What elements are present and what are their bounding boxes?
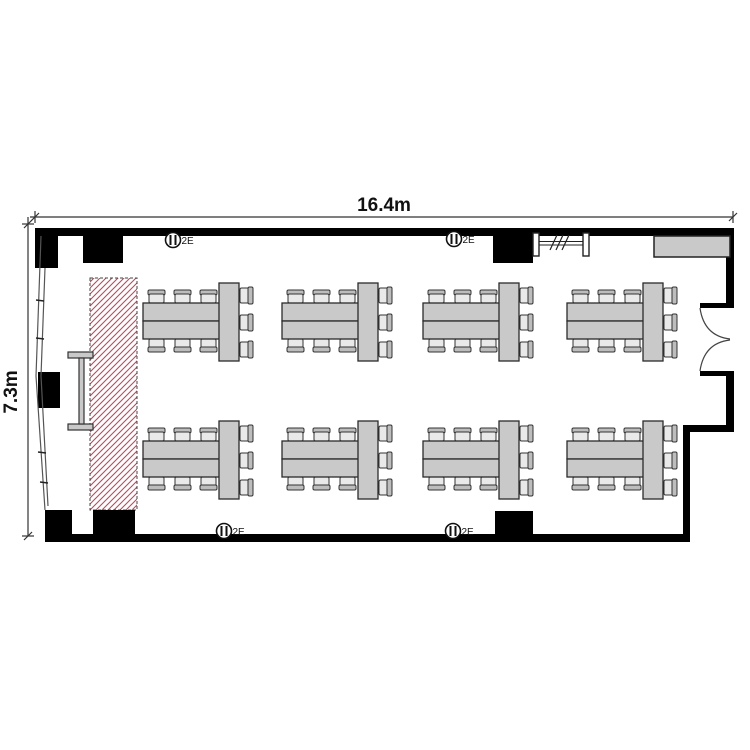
chair-backrest <box>624 347 641 352</box>
chair-icon <box>598 477 615 490</box>
long-table <box>143 459 221 477</box>
chair-icon <box>480 477 497 490</box>
chair-icon <box>240 287 253 304</box>
chair-icon <box>379 287 392 304</box>
chair-icon <box>379 479 392 496</box>
long-table <box>567 321 645 339</box>
chair-backrest <box>672 314 677 331</box>
pillar <box>35 228 58 268</box>
chair-icon <box>313 477 330 490</box>
chair-backrest <box>287 485 304 490</box>
outlet-circle <box>446 524 461 539</box>
chair-backrest <box>174 485 191 490</box>
chair-icon <box>339 339 356 352</box>
chair-backrest <box>672 479 677 496</box>
chair-icon <box>240 341 253 358</box>
window-mullion-tick <box>40 482 48 483</box>
chair-icon <box>520 479 533 496</box>
chair-icon <box>339 290 356 303</box>
long-table <box>567 459 645 477</box>
chair-seat <box>481 294 496 303</box>
screen-hatch-area <box>90 278 137 510</box>
chair-icon <box>240 479 253 496</box>
chair-backrest <box>428 347 445 352</box>
chair-icon <box>572 339 589 352</box>
table-group-6 <box>282 421 392 499</box>
chair-icon <box>428 428 445 441</box>
end-table <box>358 283 378 361</box>
chair-seat <box>288 294 303 303</box>
chair-icon <box>598 428 615 441</box>
chair-backrest <box>248 287 253 304</box>
chair-icon <box>664 314 677 331</box>
end-table <box>358 421 378 499</box>
whiteboard-stand-bar <box>79 358 84 424</box>
chair-icon <box>240 452 253 469</box>
chair-backrest <box>248 341 253 358</box>
window-mullion-tick <box>38 452 46 453</box>
chair-icon <box>174 477 191 490</box>
outlet-circle <box>166 233 181 248</box>
coat-rack-hanger-slash <box>562 235 569 250</box>
chair-backrest <box>200 347 217 352</box>
chair-backrest <box>480 485 497 490</box>
chair-backrest <box>528 479 533 496</box>
chair-backrest <box>387 287 392 304</box>
whiteboard-stand-cap <box>68 352 93 358</box>
chair-icon <box>664 479 677 496</box>
long-table <box>423 321 501 339</box>
chair-backrest <box>528 425 533 442</box>
door-swing-arc <box>700 340 730 371</box>
whiteboard-stand <box>68 352 93 430</box>
chair-backrest <box>454 485 471 490</box>
long-table <box>423 441 501 459</box>
chair-icon <box>174 428 191 441</box>
chair-seat <box>599 294 614 303</box>
coat-rack-post <box>583 233 589 256</box>
chair-backrest <box>313 485 330 490</box>
counter-shelf <box>654 236 730 257</box>
chair-backrest <box>200 485 217 490</box>
chair-icon <box>379 452 392 469</box>
whiteboard-stand-cap <box>68 424 93 430</box>
chair-icon <box>428 477 445 490</box>
chair-icon <box>339 477 356 490</box>
table-group-5 <box>143 421 253 499</box>
chair-icon <box>287 290 304 303</box>
chair-backrest <box>672 341 677 358</box>
chair-icon <box>664 452 677 469</box>
chair-seat <box>340 432 355 441</box>
table-group-2 <box>282 283 392 361</box>
chair-icon <box>287 339 304 352</box>
long-table <box>282 441 360 459</box>
coat-rack-hanger-slash <box>550 235 557 250</box>
chair-backrest <box>174 347 191 352</box>
outlet-label: 2E <box>233 527 246 538</box>
chair-icon <box>624 290 641 303</box>
chair-seat <box>288 432 303 441</box>
wall-right-lower <box>683 425 690 542</box>
chair-backrest <box>624 485 641 490</box>
chair-backrest <box>248 452 253 469</box>
chair-icon <box>428 339 445 352</box>
chair-icon <box>480 339 497 352</box>
chair-icon <box>148 339 165 352</box>
chair-icon <box>240 425 253 442</box>
chair-icon <box>287 428 304 441</box>
chair-icon <box>200 428 217 441</box>
table-group-1 <box>143 283 253 361</box>
pillar <box>495 511 533 541</box>
screen-area-layer <box>90 278 137 510</box>
chair-seat <box>340 294 355 303</box>
chair-seat <box>455 294 470 303</box>
chair-seat <box>314 432 329 441</box>
coat-rack-post <box>533 233 539 256</box>
dimension-width-label: 16.4m <box>357 195 411 216</box>
chair-icon <box>664 287 677 304</box>
chair-seat <box>175 294 190 303</box>
chair-icon <box>520 314 533 331</box>
long-table <box>282 303 360 321</box>
outlet-label: 2E <box>182 236 195 247</box>
door-jamb-top <box>700 303 734 308</box>
chair-backrest <box>248 314 253 331</box>
chair-seat <box>201 432 216 441</box>
chair-backrest <box>387 425 392 442</box>
chair-icon <box>148 290 165 303</box>
chair-seat <box>455 432 470 441</box>
chair-backrest <box>454 347 471 352</box>
table-group-4 <box>567 283 677 361</box>
end-table <box>643 421 663 499</box>
chair-icon <box>174 290 191 303</box>
long-table <box>282 321 360 339</box>
chair-icon <box>454 477 471 490</box>
chair-backrest <box>428 485 445 490</box>
chair-icon <box>240 314 253 331</box>
end-table <box>499 283 519 361</box>
chair-backrest <box>528 287 533 304</box>
chair-icon <box>200 339 217 352</box>
chair-icon <box>572 477 589 490</box>
long-table <box>143 303 221 321</box>
chair-backrest <box>339 347 356 352</box>
fixtures-layer: 2E2E2E2E <box>68 232 730 539</box>
chair-seat <box>599 432 614 441</box>
chair-icon <box>624 477 641 490</box>
chair-seat <box>149 432 164 441</box>
chair-icon <box>454 290 471 303</box>
pillar <box>493 228 533 263</box>
chair-icon <box>313 290 330 303</box>
chair-seat <box>625 294 640 303</box>
floor-plan-page: 2E2E2E2E 16.4m 7.3m <box>0 0 750 750</box>
table-group-8 <box>567 421 677 499</box>
chair-icon <box>339 428 356 441</box>
chair-icon <box>313 428 330 441</box>
outlet-circle <box>217 524 232 539</box>
chair-backrest <box>672 452 677 469</box>
chair-icon <box>480 428 497 441</box>
window-mullion-tick <box>36 300 44 301</box>
chair-backrest <box>528 314 533 331</box>
door-swing-arc <box>700 308 730 339</box>
chair-icon <box>624 339 641 352</box>
chair-seat <box>429 294 444 303</box>
pillar <box>93 510 135 541</box>
chair-icon <box>379 314 392 331</box>
coat-rack-hanger-slash <box>556 235 563 250</box>
chair-backrest <box>148 485 165 490</box>
chair-backrest <box>387 479 392 496</box>
chair-icon <box>598 290 615 303</box>
chair-icon <box>454 428 471 441</box>
chair-icon <box>313 339 330 352</box>
outlet-label: 2E <box>462 527 475 538</box>
chair-seat <box>625 432 640 441</box>
end-table <box>219 283 239 361</box>
chair-backrest <box>598 485 615 490</box>
floor-plan-svg: 2E2E2E2E 16.4m 7.3m <box>0 0 750 750</box>
chair-seat <box>149 294 164 303</box>
chair-backrest <box>387 452 392 469</box>
chair-icon <box>148 428 165 441</box>
chair-backrest <box>572 347 589 352</box>
chair-seat <box>481 432 496 441</box>
chair-icon <box>664 341 677 358</box>
window-mullion-tick <box>36 338 44 339</box>
long-table <box>423 459 501 477</box>
chair-backrest <box>313 347 330 352</box>
long-table <box>143 321 221 339</box>
chair-backrest <box>528 452 533 469</box>
chair-seat <box>175 432 190 441</box>
chair-backrest <box>528 341 533 358</box>
pillar <box>45 510 72 541</box>
chair-backrest <box>148 347 165 352</box>
pillar <box>83 228 123 263</box>
chair-icon <box>174 339 191 352</box>
coat-rack <box>533 233 589 256</box>
chair-seat <box>314 294 329 303</box>
chair-icon <box>520 425 533 442</box>
chair-backrest <box>339 485 356 490</box>
chair-seat <box>429 432 444 441</box>
chair-backrest <box>248 479 253 496</box>
outlet-circle <box>447 232 462 247</box>
outlet-label: 2E <box>463 235 476 246</box>
chair-backrest <box>387 341 392 358</box>
end-table <box>643 283 663 361</box>
chair-icon <box>598 339 615 352</box>
chair-seat <box>573 432 588 441</box>
chair-icon <box>148 477 165 490</box>
chair-icon <box>520 452 533 469</box>
chair-icon <box>480 290 497 303</box>
chair-icon <box>200 477 217 490</box>
wall-top <box>35 228 734 236</box>
furniture-layer <box>143 283 677 499</box>
chair-backrest <box>598 347 615 352</box>
end-table <box>219 421 239 499</box>
long-table <box>143 441 221 459</box>
chair-seat <box>573 294 588 303</box>
table-group-3 <box>423 283 533 361</box>
chair-icon <box>200 290 217 303</box>
table-group-7 <box>423 421 533 499</box>
end-table <box>499 421 519 499</box>
chair-seat <box>201 294 216 303</box>
chair-icon <box>520 341 533 358</box>
chair-icon <box>572 290 589 303</box>
long-table <box>567 303 645 321</box>
chair-backrest <box>480 347 497 352</box>
chair-icon <box>379 425 392 442</box>
chair-backrest <box>387 314 392 331</box>
chair-icon <box>520 287 533 304</box>
chair-icon <box>454 339 471 352</box>
wall-bottom <box>45 534 689 542</box>
chair-icon <box>287 477 304 490</box>
chair-icon <box>664 425 677 442</box>
long-table <box>567 441 645 459</box>
chair-icon <box>428 290 445 303</box>
door-jamb-bottom <box>700 371 734 376</box>
chair-backrest <box>672 425 677 442</box>
wall-step <box>688 425 734 432</box>
chair-icon <box>379 341 392 358</box>
long-table <box>423 303 501 321</box>
dimension-height-label: 7.3m <box>1 370 22 413</box>
chair-backrest <box>287 347 304 352</box>
chair-icon <box>572 428 589 441</box>
wall-right-mid <box>726 376 734 429</box>
chair-backrest <box>572 485 589 490</box>
long-table <box>282 459 360 477</box>
chair-icon <box>624 428 641 441</box>
chair-backrest <box>248 425 253 442</box>
chair-backrest <box>672 287 677 304</box>
